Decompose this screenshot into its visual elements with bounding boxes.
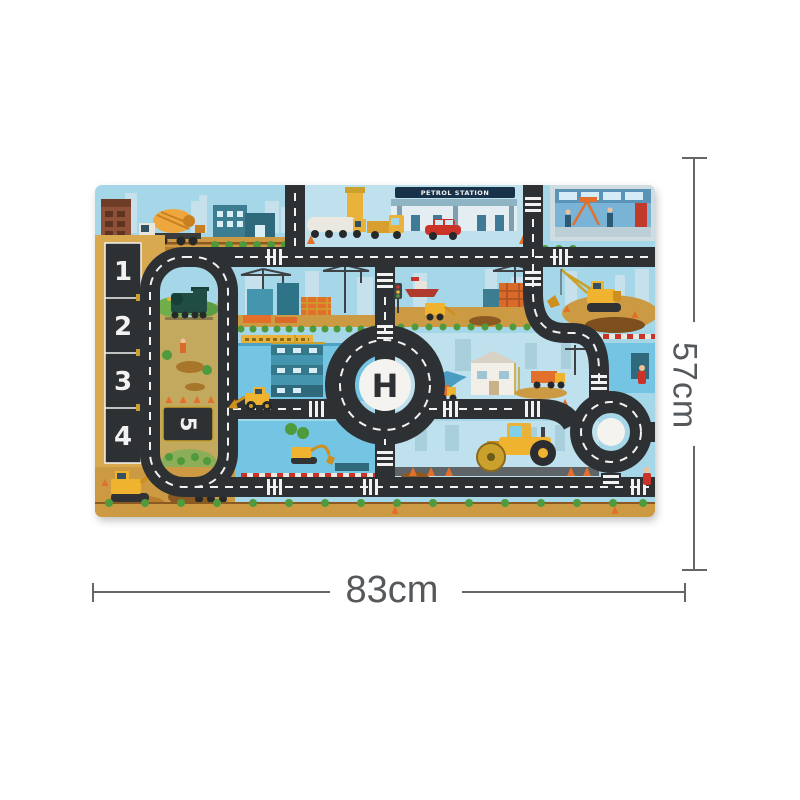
product-photo: PETROL STATION bbox=[0, 0, 800, 800]
width-dim-label: 83cm bbox=[327, 569, 457, 612]
height-dim-label: 57cm bbox=[664, 326, 704, 446]
width-dim-line-left bbox=[92, 591, 330, 593]
height-dim-line-upper bbox=[693, 157, 695, 322]
helipad-letter: H bbox=[372, 367, 399, 405]
roundabout-center bbox=[597, 418, 625, 446]
height-dim-bottom-tick bbox=[682, 569, 707, 571]
parking-number-4: 4 bbox=[114, 422, 132, 452]
width-dim-right-tick bbox=[684, 583, 686, 602]
parking-column: 1 2 3 4 bbox=[105, 243, 142, 463]
worker-on-road bbox=[643, 467, 651, 485]
road-roller-scene bbox=[395, 421, 599, 483]
train-island: 5 bbox=[155, 267, 219, 481]
petrol-station-scene: PETROL STATION bbox=[305, 185, 530, 247]
worker-red bbox=[638, 365, 646, 384]
dump-truck-orange-1 bbox=[531, 371, 565, 389]
play-mat-image: PETROL STATION bbox=[95, 185, 655, 517]
helipad: H bbox=[359, 359, 411, 411]
parking-spot-5-number: 5 bbox=[176, 417, 200, 432]
petrol-sign-text: PETROL STATION bbox=[421, 189, 490, 197]
worker-figure bbox=[180, 339, 186, 354]
height-dim-line-lower bbox=[693, 446, 695, 570]
parking-number-3: 3 bbox=[114, 367, 132, 397]
width-dim-line-right bbox=[462, 591, 684, 593]
parking-number-2: 2 bbox=[114, 312, 132, 342]
parking-number-1: 1 bbox=[114, 257, 132, 287]
